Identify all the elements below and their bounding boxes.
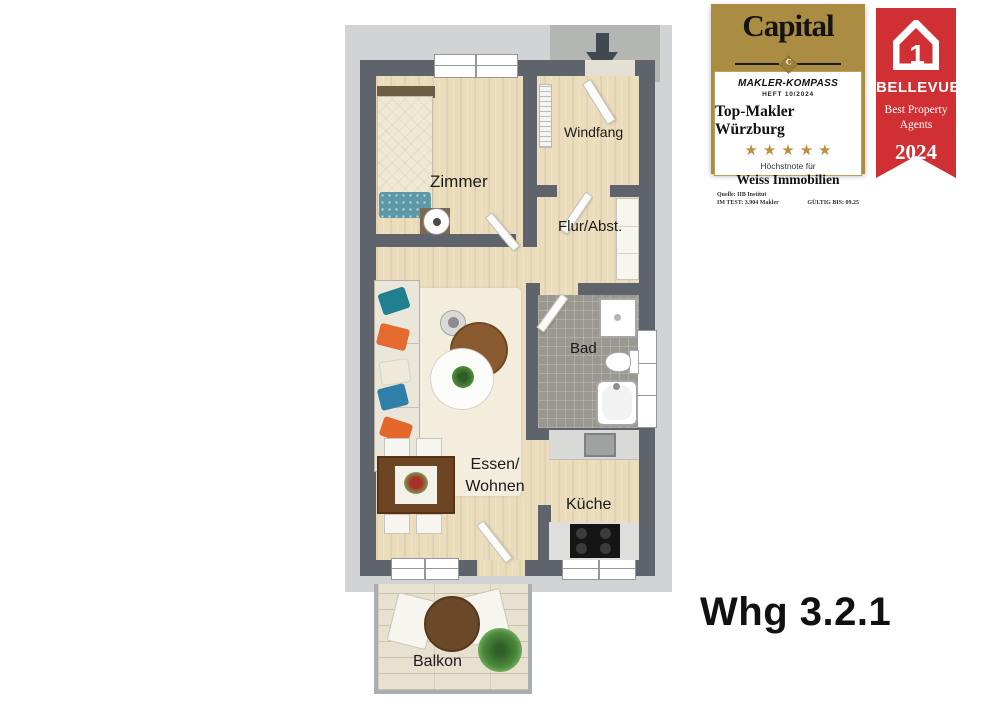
wall-bad-left (526, 283, 538, 440)
dining-chair (384, 514, 410, 534)
bellevue-house-icon: 1 (893, 20, 939, 70)
capital-source-line2: IM TEST: 3.904 Makler (717, 200, 779, 208)
capital-issue: HEFT 10/2024 (762, 91, 814, 98)
round-appliance-center (433, 218, 441, 226)
balcony-plant (478, 628, 522, 672)
window-mullion (563, 568, 635, 569)
bellevue-year: 2024 (876, 140, 956, 165)
wall-zimmer-bottom (376, 234, 516, 247)
capital-ornament: C (711, 58, 865, 71)
wall-windfang-bottom-b (610, 185, 639, 197)
capital-source: Quelle: IIB Institut IM TEST: 3.904 Makl… (717, 192, 779, 207)
kueche-window (562, 558, 636, 580)
capital-source-line1: Quelle: IIB Institut (717, 192, 779, 200)
balcony-door-opening (477, 560, 525, 576)
bellevue-brand: BELLEVUE (876, 79, 956, 96)
capital-valid-until: GÜLTIG BIS: 09.25 (807, 200, 859, 208)
unit-label: Whg 3.2.1 (700, 590, 891, 635)
window-mullion (475, 55, 477, 77)
room-label-bad: Bad (570, 340, 597, 357)
toilet-bowl (605, 352, 631, 372)
capital-footer: Quelle: IIB Institut IM TEST: 3.904 Makl… (717, 192, 859, 207)
room-label-windfang: Windfang (564, 124, 623, 140)
entry-arrow-icon (596, 33, 609, 53)
bathtub-faucet (613, 383, 620, 390)
dining-chair (416, 438, 442, 458)
room-label-essen-wohnen: Essen/ Wohnen (440, 454, 550, 497)
stove-burner (600, 528, 611, 539)
capital-badge-body: MAKLER-KOMPASS HEFT 10/2024 Top-Makler W… (714, 71, 862, 176)
wohnen-window (391, 558, 459, 580)
window-mullion (424, 559, 426, 579)
stove-burner (576, 528, 587, 539)
capital-note: Höchstnote für (760, 161, 815, 171)
window-mullion (638, 395, 656, 396)
zimmer-window (434, 54, 518, 78)
window-mullion (392, 568, 458, 569)
room-label-balkon: Balkon (413, 653, 462, 671)
bad-window (637, 330, 657, 428)
bellevue-award-line2: Agents (876, 118, 956, 133)
room-label-essen-line2: Wohnen (440, 476, 550, 498)
capital-award-badge: Capital C MAKLER-KOMPASS HEFT 10/2024 To… (711, 4, 865, 174)
capital-emblem-icon: C (779, 55, 797, 73)
ornament-line (797, 63, 841, 65)
window-mullion (598, 559, 600, 579)
entrance-opening (585, 60, 635, 76)
wall-windfang-bottom-a (537, 185, 557, 197)
stove (570, 524, 620, 558)
ornament-line (735, 63, 779, 65)
room-label-flur: Flur/Abst. (558, 218, 622, 235)
stove-burner (576, 543, 587, 554)
sofa-pillow-white (378, 358, 411, 386)
room-label-essen-line1: Essen/ (440, 454, 550, 476)
side-table-vase (448, 317, 459, 328)
bellevue-award-line1: Best Property (876, 103, 956, 118)
room-label-zimmer: Zimmer (430, 172, 488, 192)
dining-chair (384, 438, 410, 458)
balcony-table (424, 596, 480, 652)
kitchen-sink (584, 433, 616, 457)
bathtub-inner (602, 386, 632, 420)
svg-text:1: 1 (909, 39, 925, 70)
stove-burner (600, 543, 611, 554)
capital-award-title: Top-Makler Würzburg (715, 103, 861, 139)
table-plant (452, 366, 474, 388)
capital-company: Weiss Immobilien (736, 172, 839, 188)
bellevue-award-badge: 1 BELLEVUE Best Property Agents 2024 (876, 8, 956, 178)
five-stars-icon: ★★★★★ (739, 141, 836, 159)
wardrobe (616, 198, 639, 280)
wardrobe-shelf-line (617, 253, 638, 254)
wall-zimmer-right (523, 76, 537, 247)
window-mullion (435, 65, 517, 66)
floorplan-page: Zimmer Windfang Flur/Abst. Bad Essen/ Wo… (0, 0, 1000, 720)
flower-decoration (404, 472, 428, 494)
wall-right (639, 60, 655, 576)
radiator (539, 84, 552, 148)
dining-chair (416, 514, 442, 534)
window-mullion (638, 363, 656, 364)
shower-drain (614, 314, 621, 321)
capital-series: MAKLER-KOMPASS (738, 78, 838, 89)
wall-bad-top-b (578, 283, 639, 295)
room-label-kueche: Küche (566, 496, 611, 514)
capital-logo: Capital (711, 4, 865, 58)
